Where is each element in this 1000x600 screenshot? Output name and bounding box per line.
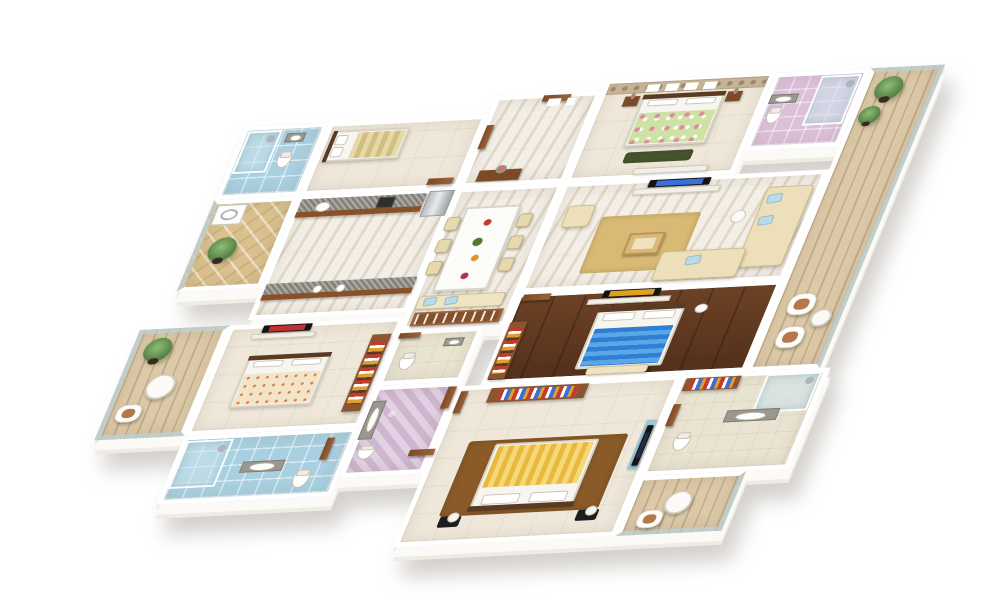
single-bed — [321, 127, 410, 162]
sink-pink — [768, 93, 799, 104]
sofa-seat — [650, 247, 747, 281]
floor-plan-stage — [0, 0, 1000, 600]
wall-extrusion-shadow — [0, 0, 1000, 600]
wc-sink — [443, 337, 466, 346]
apartment-plan — [37, 63, 977, 579]
foyer-art — [546, 97, 577, 106]
